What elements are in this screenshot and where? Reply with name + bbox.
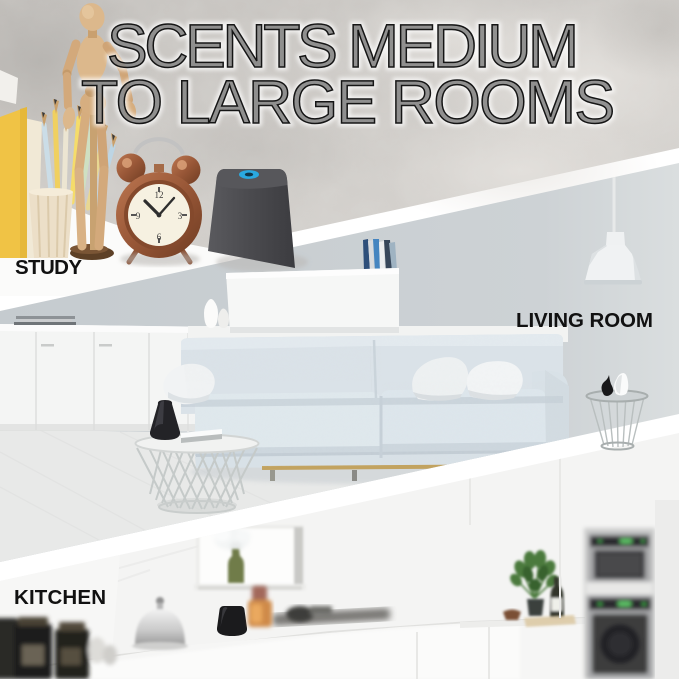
svg-text:STUDY: STUDY	[15, 256, 82, 279]
svg-text:TO LARGE ROOMS: TO LARGE ROOMS	[81, 68, 615, 136]
svg-text:9: 9	[136, 211, 141, 221]
svg-text:12: 12	[155, 190, 164, 200]
svg-text:3: 3	[178, 211, 183, 221]
svg-text:6: 6	[157, 232, 162, 242]
svg-text:KITCHEN: KITCHEN	[14, 586, 106, 609]
svg-text:LIVING ROOM: LIVING ROOM	[516, 309, 653, 332]
